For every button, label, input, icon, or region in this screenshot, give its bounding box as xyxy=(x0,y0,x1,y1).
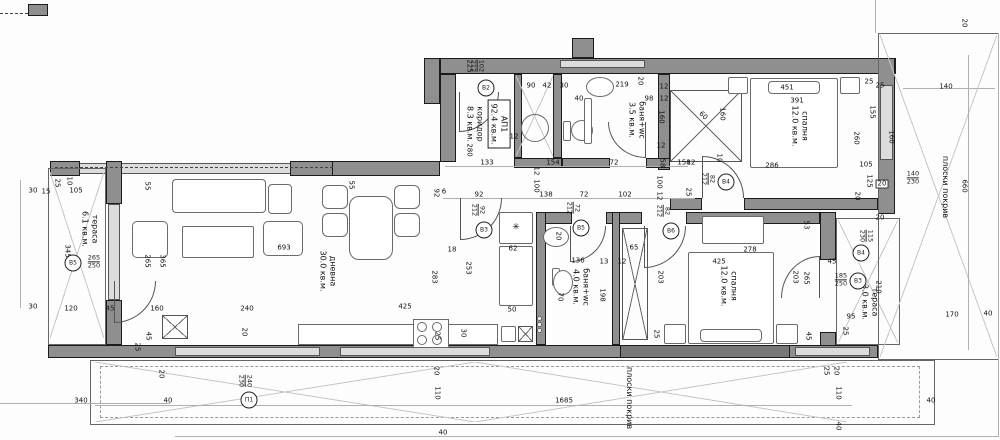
armchair xyxy=(268,184,292,214)
dim-label: 25 xyxy=(653,330,660,339)
dim-label: 25 xyxy=(134,343,141,352)
dim-label: 198 xyxy=(599,288,606,301)
dim-label: 133 xyxy=(480,160,493,167)
window-mark-roof: П1 xyxy=(241,392,258,409)
roof-edge-line-b xyxy=(175,436,999,437)
window-kitchen-south xyxy=(340,347,490,356)
dim-label: 40 xyxy=(835,422,842,431)
dim-label: 53 xyxy=(803,221,810,230)
freezer-icon: ✳ xyxy=(512,224,520,233)
stove-burner xyxy=(417,335,427,345)
dim-label: 40 xyxy=(575,96,584,103)
dim-label: 203 xyxy=(657,270,664,283)
wall-south-dark xyxy=(620,345,790,358)
dining-chair xyxy=(394,185,420,209)
dim-label: 1685 xyxy=(555,398,573,405)
dim-label: 253 xyxy=(465,261,472,274)
dim-label: 25 xyxy=(823,367,830,376)
dim-label: 340 xyxy=(74,398,87,405)
wall-bedroom2-east-b xyxy=(820,332,836,346)
nightstand xyxy=(664,324,686,344)
dim-label: 25 xyxy=(876,83,885,90)
room-label-bedroom1: спалня12.0 кв.м. xyxy=(790,105,809,146)
dim-label: 110 xyxy=(434,386,441,399)
axis-dash xyxy=(0,13,28,14)
roof-bottom-hatch-a xyxy=(95,362,475,422)
dim-label: 20 xyxy=(241,328,248,337)
dim-label: 160 xyxy=(658,110,665,123)
dim-line xyxy=(20,180,21,308)
dim-label: 219 xyxy=(615,82,628,89)
dining-table xyxy=(349,196,393,260)
dim-label: 65 xyxy=(630,245,639,252)
dim-label: 20 xyxy=(961,19,968,28)
room-label-terrace-left: тераса6.1 кв.м. xyxy=(80,211,99,247)
bath1-radiator xyxy=(584,98,592,144)
dim-label: 203 xyxy=(792,270,799,283)
dim-label: 265 xyxy=(144,254,151,267)
dim-label: 260 xyxy=(853,131,860,144)
dim-label: 55 xyxy=(144,182,151,191)
floor-plan: ✳ тераса6.1 кв.м. дневна30.0 кв.м. АП192… xyxy=(0,0,1000,440)
dim-label: 155 xyxy=(869,105,876,118)
dim-label: 225 xyxy=(466,59,473,72)
door-size: 185250 xyxy=(835,272,847,287)
dim-label: 72 xyxy=(580,192,589,199)
dim-label: 280 xyxy=(466,143,473,156)
door-arc-terrace-right xyxy=(781,256,820,298)
dim-label: 283 xyxy=(431,270,438,283)
door-mark-terrace-right: В3 xyxy=(850,273,867,290)
dim-label: 25 xyxy=(685,188,692,197)
shaft-circle xyxy=(521,114,549,142)
bed2-pillow xyxy=(700,329,762,342)
kitchen-counter xyxy=(298,324,498,345)
dim-label: 10 xyxy=(66,177,73,186)
dim-label: 20 xyxy=(555,232,562,241)
dim-label: 18 xyxy=(448,247,457,254)
dim-label: 25 xyxy=(842,327,849,336)
armchair xyxy=(132,221,168,258)
dim-label: 160 xyxy=(150,306,163,313)
dim-label: 20 xyxy=(876,180,889,189)
roof-edge-line-a xyxy=(875,0,876,33)
dim-label: 30 xyxy=(29,188,38,195)
bath1-toilet-tank xyxy=(563,121,571,141)
stove-burner xyxy=(417,322,427,332)
door-arc-terrace-left xyxy=(114,281,156,323)
door-size: 82212 xyxy=(655,205,670,217)
dim-label: 90 xyxy=(527,83,536,90)
dim-label: 40 xyxy=(927,398,936,405)
dim-label: 20 xyxy=(158,370,165,379)
door-mark-bedroom2: В6 xyxy=(663,223,680,240)
dim-label: 30 xyxy=(29,304,38,311)
dim-label: 25 xyxy=(865,79,874,86)
window-mark-terrace-right: В4 xyxy=(853,245,870,262)
dim-label: 50 xyxy=(508,307,517,314)
door-mark-bedroom1: В4 xyxy=(718,174,735,191)
coffee-table xyxy=(182,226,254,258)
dim-label: 125 xyxy=(866,174,873,187)
nightstand xyxy=(776,324,798,344)
washer-box xyxy=(501,326,516,342)
dim-label: 265 xyxy=(803,271,810,284)
dim-line xyxy=(95,405,852,406)
dim-label: 42 xyxy=(543,83,552,90)
wall-north-living-c xyxy=(332,161,440,176)
dim-label: 20 xyxy=(637,77,644,86)
dim-label: 12 xyxy=(660,96,669,103)
room-label-living: дневна30.0 кв.м. xyxy=(318,250,337,291)
dim-label: 92 xyxy=(433,189,440,198)
dim-label: 45 xyxy=(106,306,115,313)
window-size: 115230 xyxy=(858,230,873,242)
dim-label: 72 xyxy=(610,160,619,167)
dim-label: 425 xyxy=(398,304,411,311)
towel-rail-dot xyxy=(537,322,542,327)
nightstand xyxy=(728,77,748,94)
window-size: 240230 xyxy=(237,375,252,387)
dim-label: 391 xyxy=(790,98,803,105)
dim-label: 70 xyxy=(557,293,564,302)
dim-label: 12 xyxy=(533,167,540,176)
dim-label: 20 xyxy=(876,215,885,222)
dim-label: 12 xyxy=(618,259,627,266)
dim-label: 240 xyxy=(240,306,253,313)
roof-label-bottom: плоски покрив xyxy=(624,367,634,429)
dim-label: 12 xyxy=(510,134,519,141)
dim-label: 693 xyxy=(277,245,290,252)
dim-label: 62 xyxy=(509,246,518,253)
roof-bottom-hatch-b xyxy=(475,362,847,422)
wall-west-upper xyxy=(440,74,456,162)
dim-label: 660 xyxy=(961,179,968,192)
flue-block xyxy=(162,315,188,339)
dim-label: 40 xyxy=(984,311,993,318)
towel-rail-dot xyxy=(537,328,542,333)
dining-chair xyxy=(394,213,420,237)
apartment-label: АП192.4 кв.м. xyxy=(487,99,510,148)
door-mark-living: В3 xyxy=(476,222,493,239)
wall-entry-stub xyxy=(424,58,440,104)
room-label-corridor: коридор8.3 кв.м. xyxy=(465,106,484,142)
dim-label: 154 xyxy=(546,160,559,167)
dim-label: 45 xyxy=(805,332,812,341)
sofa xyxy=(172,179,266,213)
dim-line xyxy=(968,55,969,350)
dim-label: 13 xyxy=(600,259,609,266)
dim-label: 102 xyxy=(618,192,631,199)
room-label-bedroom2: спалня12.0 кв.м. xyxy=(719,265,738,306)
dim-label: 92 xyxy=(475,192,484,199)
dim-label: 136 xyxy=(571,258,584,265)
dim-label: 160 xyxy=(888,130,895,143)
room-label-bath2: баня+wc4.0 кв.м. xyxy=(571,268,590,306)
wall-north xyxy=(440,58,896,74)
dim-label: 158 xyxy=(677,160,690,167)
dim-label: 451 xyxy=(780,85,793,92)
dim-label: 20 xyxy=(833,367,840,376)
room-label-bath1: баня+wc3.5 кв.м. xyxy=(627,101,646,139)
dim-label: 95 xyxy=(847,314,856,321)
dim-label: 55 xyxy=(348,181,355,190)
dim-label: 12 xyxy=(657,143,666,150)
door-mark-bath2: В5 xyxy=(573,220,590,237)
dim-label: 10 xyxy=(716,154,723,163)
dim-label: 100 xyxy=(656,175,663,188)
dim-label: 365 xyxy=(159,254,166,267)
wall-bath2-bedroom2 xyxy=(612,212,620,345)
nightstand xyxy=(840,77,860,94)
stove-burner xyxy=(432,322,442,332)
bed1-pillow xyxy=(768,81,820,94)
dim-label: 138 xyxy=(539,192,552,199)
dim-label: 20 xyxy=(433,367,440,376)
window-living-south xyxy=(175,347,320,356)
dim-label: 110 xyxy=(835,386,842,399)
wardrobe-bedroom1 xyxy=(670,90,742,162)
dim-label: 160 xyxy=(719,107,726,120)
chimney xyxy=(572,38,594,58)
door-mark-entrance: В2 xyxy=(478,80,495,97)
bath1-sink xyxy=(586,77,614,97)
dim-label: 45 xyxy=(828,259,837,266)
kitchen-cabinet xyxy=(499,246,533,306)
dim-label: 170 xyxy=(945,312,958,319)
bath2-toilet xyxy=(553,270,573,295)
door-size: 82212 xyxy=(700,173,715,185)
dim-label: 140 xyxy=(939,84,952,91)
wall-north-living-b xyxy=(290,161,334,176)
dim-fraction: 140230 xyxy=(907,170,919,185)
dim-label: 12 xyxy=(660,84,669,91)
towel-rail-dot xyxy=(537,316,542,321)
dim-label: 30 xyxy=(560,83,569,90)
dim-label: 286 xyxy=(765,163,778,170)
dim-label: 6 xyxy=(442,189,446,196)
dim-label: 58 xyxy=(659,159,666,168)
dim-label: 15 xyxy=(42,189,51,196)
door-size: 265250 xyxy=(88,254,100,269)
dim-label: 425 xyxy=(712,259,725,266)
dim-label: 45 xyxy=(145,332,152,341)
door-mark-terrace-left: В5 xyxy=(65,255,82,272)
dim-label: 40 xyxy=(164,398,173,405)
dim-label: 12 xyxy=(656,192,663,201)
roof-label-right: плоски покрив xyxy=(940,156,950,218)
wall-top-left-stub xyxy=(28,4,48,16)
dim-label: 30 xyxy=(460,329,467,338)
window-bedroom2-south xyxy=(795,347,870,356)
dim-label: 210 xyxy=(875,280,882,293)
dim-label: 25 xyxy=(54,179,61,188)
dining-chair xyxy=(322,185,348,209)
roof-edge-line-c xyxy=(998,33,999,436)
dim-label: 20 xyxy=(854,192,861,201)
dim-label: 25 xyxy=(434,332,441,341)
dim-label: 98 xyxy=(645,96,654,103)
dim-label: 105 xyxy=(69,188,82,195)
window-bath1 xyxy=(560,60,645,68)
dim-label: 120 xyxy=(64,306,77,313)
dim-label: 40 xyxy=(439,430,448,437)
wall-bedroom1-south-a xyxy=(670,198,702,210)
dresser-bedroom2 xyxy=(702,216,764,244)
door-size: 72212 xyxy=(565,202,580,214)
dining-chair xyxy=(322,213,348,237)
washer-box-hatched xyxy=(518,326,533,342)
dim-label: 105 xyxy=(859,162,872,169)
door-size: 92212 xyxy=(470,204,485,216)
wall-bedroom2-east-a xyxy=(820,212,836,260)
dim-label: 278 xyxy=(743,247,756,254)
